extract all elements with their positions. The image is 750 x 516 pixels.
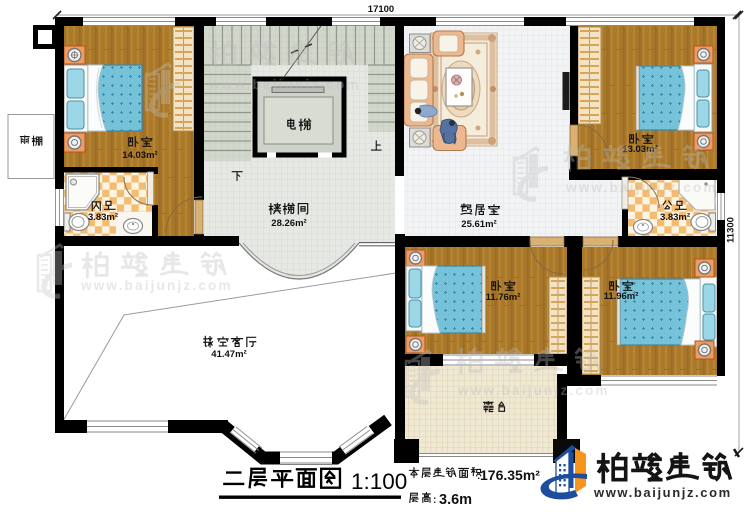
svg-text:www.baijunjz.com: www.baijunjz.com <box>565 180 718 195</box>
svg-text:14.03m²: 14.03m² <box>122 150 157 161</box>
svg-text:17100: 17100 <box>368 4 394 15</box>
svg-text:3.83m²: 3.83m² <box>88 212 118 223</box>
svg-text:28.26m²: 28.26m² <box>271 218 306 229</box>
svg-text:www.baijunjz.com: www.baijunjz.com <box>593 485 732 500</box>
svg-text:25.61m²: 25.61m² <box>461 219 496 230</box>
svg-text:www.baijunjz.com: www.baijunjz.com <box>208 77 361 92</box>
svg-text:3.6m: 3.6m <box>439 492 472 508</box>
svg-text:176.35m²: 176.35m² <box>480 467 540 483</box>
svg-text:www.baijunjz.com: www.baijunjz.com <box>80 278 233 293</box>
svg-text:www.baijunjz.com: www.baijunjz.com <box>457 383 610 398</box>
svg-text:41.47m²: 41.47m² <box>211 349 246 360</box>
svg-text:11.76m²: 11.76m² <box>486 292 521 303</box>
svg-text:3.83m²: 3.83m² <box>660 212 690 223</box>
svg-text:11.96m²: 11.96m² <box>604 291 639 302</box>
svg-text:11300: 11300 <box>726 217 737 243</box>
svg-text:1:100: 1:100 <box>351 469 407 494</box>
svg-text::: : <box>433 495 436 506</box>
